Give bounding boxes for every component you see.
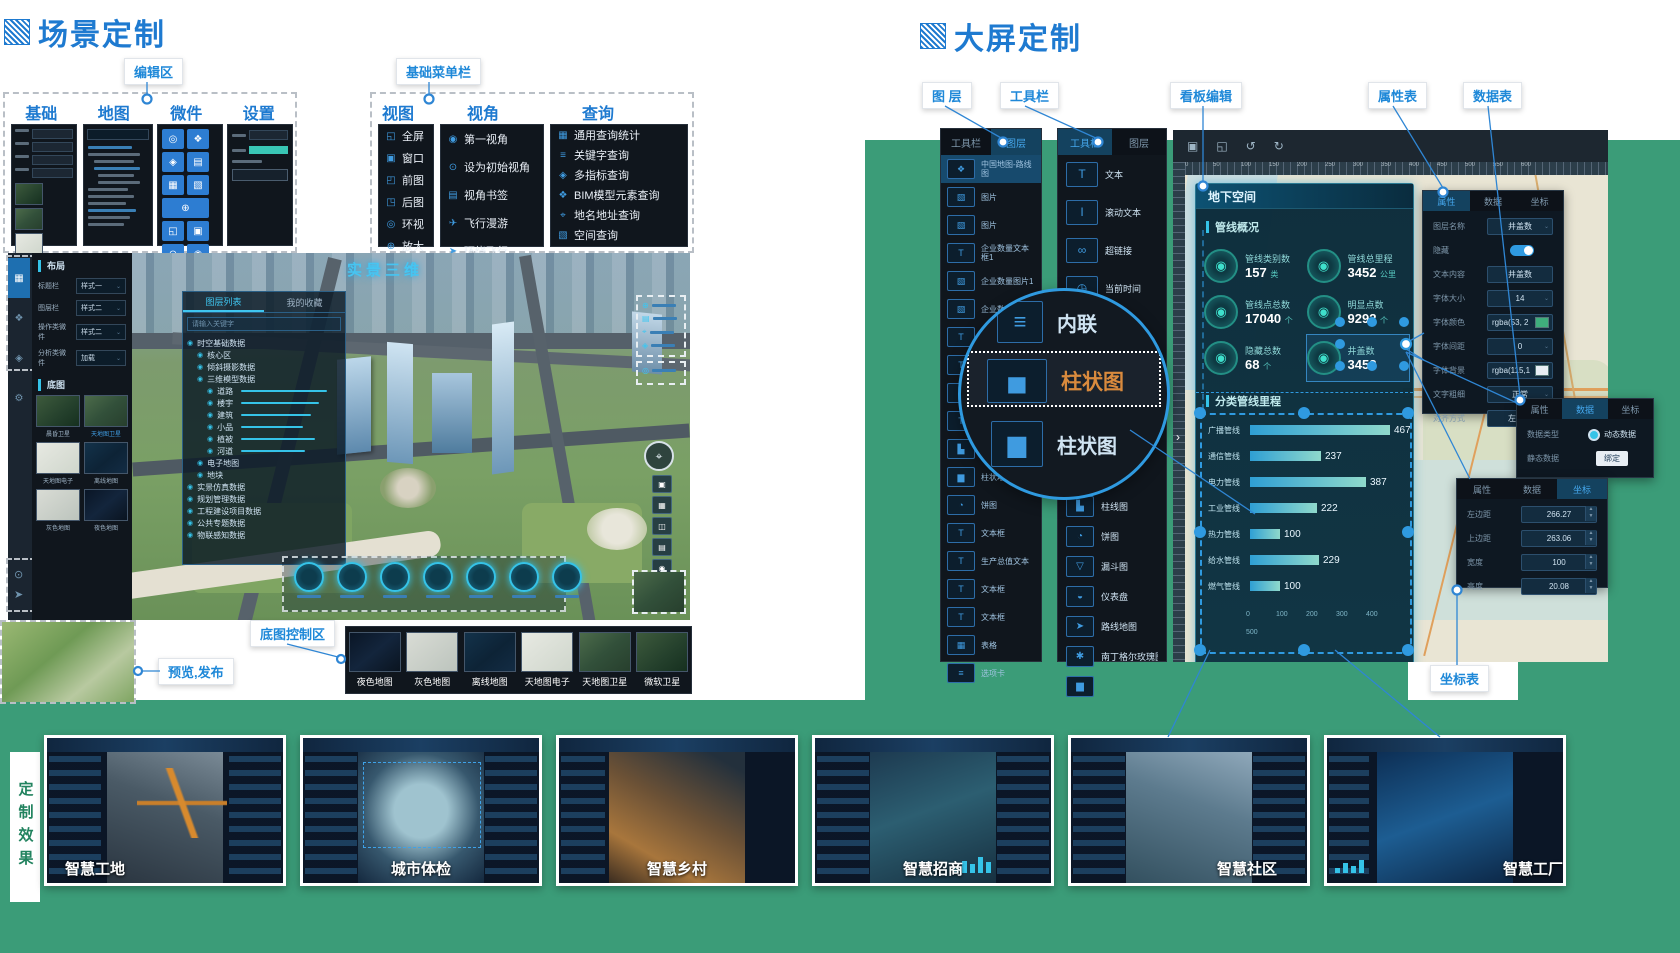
- gallery-item-investment[interactable]: 智慧招商: [812, 735, 1054, 886]
- basemap-option-image: [521, 632, 573, 672]
- widget-tile[interactable]: ◎: [162, 129, 184, 149]
- chart-category-label: 燃气管线: [1208, 581, 1250, 592]
- basemap-option-image: [349, 632, 401, 672]
- image-icon: ▧: [947, 215, 975, 235]
- eye-icon[interactable]: ◉: [197, 363, 203, 371]
- tool-item-label: 仪表盘: [1101, 590, 1128, 603]
- ruler-number: 500: [1465, 162, 1493, 168]
- basemap-option[interactable]: 灰色地图: [404, 632, 460, 688]
- ruler-number: 450: [1437, 162, 1465, 168]
- section-bullet-icon: [4, 19, 30, 45]
- coord-row-value[interactable]: 100 ▲▼: [1521, 554, 1597, 571]
- layer-item[interactable]: T 文本框: [941, 575, 1041, 603]
- tool-item-label: 路线地图: [1101, 620, 1137, 633]
- screen-section-title: 大屏定制: [954, 14, 1082, 58]
- gallery-item-village[interactable]: 智慧乡村: [556, 735, 798, 886]
- bar-chart-icon: ▅: [987, 359, 1047, 403]
- basemap-option-label: 天地图卫星: [582, 675, 627, 688]
- split-icon[interactable]: ◫: [652, 517, 672, 535]
- coords-tab-data[interactable]: 数据: [1507, 479, 1557, 499]
- opacity-slider[interactable]: [241, 414, 311, 416]
- eye-icon[interactable]: ◉: [187, 495, 193, 503]
- basemap-option[interactable]: 天地图电子: [519, 632, 575, 688]
- tool-item[interactable]: ◔ 饼图: [1058, 521, 1166, 551]
- watermark-text: 实景三维: [347, 259, 423, 280]
- widget-swipe[interactable]: [466, 562, 496, 598]
- stat-item[interactable]: ◉ 明显点数 9292 个: [1307, 289, 1410, 335]
- scene-config-panel: 布局 标题栏 样式一⌄ 图层栏 样式二⌄ 操作类微件 样式二⌄: [32, 253, 133, 620]
- gallery-item-title: 智慧工地: [47, 858, 286, 879]
- tree-row[interactable]: ◉ 建筑: [187, 409, 341, 421]
- rose-icon: ✱: [1066, 646, 1094, 667]
- chart-category-label: 工业管线: [1208, 503, 1250, 514]
- tree-row[interactable]: ◉ 植被: [187, 433, 341, 445]
- eye-icon[interactable]: ◉: [197, 459, 203, 467]
- basemap-option-image: [579, 632, 631, 672]
- tab-settings[interactable]: 设置: [243, 100, 275, 124]
- basemap-thumb-cell[interactable]: 夜色地图: [84, 489, 128, 532]
- widget-tile[interactable]: ⊕: [162, 198, 209, 218]
- zoom-in-icon: ⊕: [385, 241, 397, 252]
- eye-icon[interactable]: ◉: [187, 507, 193, 515]
- orbit-icon: ◎: [385, 219, 397, 230]
- eye-icon[interactable]: ◉: [207, 387, 213, 395]
- data-panel: 属性 数据 坐标 数据类型 动态数据 静态数据 绑定: [1516, 398, 1654, 478]
- eye-icon[interactable]: ◉: [187, 339, 193, 347]
- coords-tab-coords[interactable]: 坐标: [1557, 479, 1607, 499]
- stat-item[interactable]: ◉ 管线点总数 17040 个: [1204, 289, 1307, 335]
- coord-row-label: 左边距: [1467, 509, 1515, 520]
- tree-row[interactable]: ◉ 时空基础数据: [187, 337, 341, 349]
- redo-icon[interactable]: ↻: [1274, 139, 1284, 153]
- tree-tab-favorites[interactable]: 我的收藏: [264, 292, 345, 312]
- tree-tab-layers[interactable]: 图层列表: [183, 292, 264, 312]
- layout-row-select[interactable]: 样式二⌄: [76, 324, 126, 340]
- scroll-text-icon: I: [1066, 200, 1098, 225]
- tree-row[interactable]: ◉ 公共专题数据: [187, 517, 341, 529]
- route-map-icon: ➤: [1066, 616, 1094, 637]
- mark-icon[interactable]: ◈: [642, 341, 648, 350]
- scene-3d-view[interactable]: 实景三维 图层列表 我的收藏 请输入关键字 ◉ 时空基础数据 ◉: [132, 253, 690, 620]
- menu-item[interactable]: ⊙设为初始视角: [441, 153, 543, 181]
- widget-viewshed[interactable]: [380, 562, 410, 598]
- locate-icon[interactable]: ⊕: [642, 301, 649, 310]
- menu-group-title-camera: 视角: [467, 106, 499, 123]
- gear-icon: ⚙: [15, 393, 24, 404]
- menu-item[interactable]: ▤视角书签: [441, 181, 543, 209]
- widget-tile[interactable]: ▧: [187, 175, 209, 195]
- ruler-number: 200: [1297, 162, 1325, 168]
- stat-item[interactable]: ◉ 管线总里程 3452 公里: [1307, 243, 1410, 289]
- coord-row-label: 上边距: [1467, 533, 1515, 544]
- tool-item[interactable]: ◒ 仪表盘: [1058, 581, 1166, 611]
- image-icon: ▧: [947, 271, 975, 291]
- menu-item[interactable]: ≡关键字查询: [551, 145, 687, 165]
- basemap-thumb-cell[interactable]: 离线地图: [84, 442, 128, 485]
- x-tick-label: 500: [1246, 629, 1276, 636]
- chart-category-label: 给水管线: [1208, 555, 1250, 566]
- x-tick-label: 0: [1246, 611, 1276, 618]
- multi-indicator-icon: ◈: [557, 170, 569, 181]
- dashboard[interactable]: 地下空间 管线概况 ◉ 管线类别数 157 类 ◉ 管线点总数 17040 个: [1195, 183, 1414, 662]
- minimap-box[interactable]: [632, 570, 686, 614]
- stat-icon: ◉: [1204, 249, 1238, 283]
- panel-tab-layers[interactable]: 图层: [991, 129, 1041, 155]
- tree-row[interactable]: ◉ 实景仿真数据: [187, 481, 341, 493]
- opacity-slider[interactable]: [241, 390, 327, 392]
- tree-row-label: 核心区: [207, 350, 231, 361]
- prop-label: 对齐方式: [1433, 413, 1481, 424]
- widget-sight[interactable]: [337, 562, 367, 598]
- tree-row[interactable]: ◉ 三维模型数据: [187, 373, 341, 385]
- tree-row-label: 楼宇: [217, 398, 233, 409]
- widget-tile[interactable]: ▦: [162, 175, 184, 195]
- save-icon[interactable]: ▣: [1187, 139, 1198, 153]
- tree-row[interactable]: ◉ 电子地图: [187, 457, 341, 469]
- layer-item-label: 图片: [981, 193, 997, 202]
- layer-item[interactable]: ◔ 饼图: [941, 491, 1041, 519]
- layout-row-select[interactable]: 样式二⌄: [76, 300, 126, 316]
- basemap-control-tag: 底图控制区: [250, 620, 335, 647]
- panel-tab-layers[interactable]: 图层: [1112, 129, 1166, 155]
- ruler-number: 550: [1493, 162, 1521, 168]
- coords-table-tag: 坐标表: [1430, 665, 1489, 692]
- board-edit-tag: 看板编辑: [1170, 82, 1242, 109]
- basemap-thumb-image: [84, 395, 128, 427]
- color-swatch: [1535, 317, 1549, 328]
- tree-row[interactable]: ◉ 核心区: [187, 349, 341, 361]
- data-row: 数据类型 动态数据: [1527, 426, 1643, 443]
- chevron-down-icon: ⌄: [1544, 343, 1549, 350]
- prop-label: 字体间距: [1433, 341, 1481, 352]
- undo-icon[interactable]: ↺: [1246, 139, 1256, 153]
- opacity-slider[interactable]: [241, 402, 319, 404]
- pie-icon: ◔: [1066, 526, 1094, 547]
- tool-item[interactable]: ∞ 超链接: [1058, 231, 1166, 269]
- data-tab-attr[interactable]: 属性: [1517, 399, 1562, 419]
- stepper-arrows[interactable]: ▲▼: [1585, 578, 1596, 593]
- tree-row-label: 工程建设项目数据: [197, 506, 261, 517]
- mini-panel-settings: [227, 124, 293, 246]
- eye-icon[interactable]: ◉: [207, 411, 213, 419]
- chart-value-label: 387: [1370, 477, 1387, 488]
- x-tick-label: 400: [1366, 611, 1396, 618]
- opacity-slider[interactable]: [241, 438, 315, 440]
- camera-icon[interactable]: ▣: [652, 475, 672, 493]
- basemap-thumb-cell[interactable]: 灰色地图: [36, 489, 80, 532]
- basemap-option-label: 微软卫星: [644, 675, 680, 688]
- prop-value[interactable]: 0 ⌄: [1487, 338, 1553, 355]
- chart-row: 通信管线 237: [1208, 443, 1413, 469]
- tree-row-label: 倾斜摄影数据: [207, 362, 255, 373]
- basemap-option-image: [406, 632, 458, 672]
- tab-widgets[interactable]: 微件: [170, 100, 202, 124]
- menu-item-label: 空间查询: [574, 227, 618, 243]
- layout-row-select[interactable]: 样式一⌄: [76, 278, 126, 294]
- tool-item[interactable]: T 文本: [1058, 155, 1166, 193]
- layer-item-label: 表格: [981, 641, 997, 650]
- chevron-down-icon: ⌄: [1544, 295, 1549, 302]
- data-row-label: 静态数据: [1527, 453, 1575, 464]
- layers-icon[interactable]: ▦: [652, 496, 672, 514]
- layout-section-header: 布局: [38, 259, 132, 272]
- prop-row: 字体背景 rgba(115,1: [1433, 362, 1553, 379]
- magnified-tool-selected[interactable]: ▅ 柱状图: [967, 351, 1161, 407]
- tool-item[interactable]: ▽ 漏斗图: [1058, 551, 1166, 581]
- tree-row[interactable]: ◉ 道路: [187, 385, 341, 397]
- chart-row: 给水管线 229: [1208, 547, 1413, 573]
- tab-basic[interactable]: 基础: [25, 100, 57, 124]
- tab-map[interactable]: 地图: [98, 100, 130, 124]
- layer-item[interactable]: T 文本框: [941, 519, 1041, 547]
- opacity-slider[interactable]: [241, 450, 305, 452]
- next-view-icon: ◳: [385, 197, 397, 208]
- menu-item[interactable]: ⌖地名地址查询: [551, 205, 687, 225]
- tree-row[interactable]: ◉ 河道: [187, 445, 341, 457]
- fullscreen-icon: ◱: [385, 131, 397, 142]
- gauge-icon: ◒: [1066, 586, 1094, 607]
- layer-item[interactable]: ▦ 表格: [941, 631, 1041, 659]
- gallery-item-title: 智慧乡村: [559, 858, 795, 879]
- basemap-option[interactable]: 微软卫星: [634, 632, 690, 688]
- chevron-down-icon: ⌄: [1544, 391, 1549, 398]
- coord-row-value[interactable]: 20.08 ▲▼: [1521, 578, 1597, 595]
- data-tab-coords[interactable]: 坐标: [1608, 399, 1653, 419]
- stat-icon: ◉: [1307, 249, 1341, 283]
- eye-icon[interactable]: ◉: [207, 399, 213, 407]
- data-row-value[interactable]: 动态数据: [1581, 427, 1643, 442]
- widget-tile[interactable]: ▣: [187, 221, 209, 241]
- menu-item[interactable]: ◈多指标查询: [551, 165, 687, 185]
- menu-item[interactable]: ❖BIM模型元素查询: [551, 185, 687, 205]
- prop-value[interactable]: [1487, 243, 1553, 258]
- tree-row-label: 规划管理数据: [197, 494, 245, 505]
- props-tab-data[interactable]: 数据: [1470, 191, 1517, 211]
- tree-row[interactable]: ◉ 物联感知数据: [187, 529, 341, 541]
- data-row-value[interactable]: 绑定: [1581, 451, 1643, 466]
- widget-roam[interactable]: [294, 562, 324, 598]
- layer-item[interactable]: ≡ 选项卡: [941, 659, 1041, 687]
- chart-x-axis: 0100200300400500: [1246, 603, 1413, 639]
- widget-tile[interactable]: ❖: [187, 129, 209, 149]
- layer-item[interactable]: T 生产总值文本: [941, 547, 1041, 575]
- widget-tile[interactable]: ◱: [162, 221, 184, 241]
- prop-value[interactable]: 井盖数 ⌄: [1487, 218, 1553, 235]
- menu-item-label: 多指标查询: [574, 167, 629, 183]
- tool-item[interactable]: ✱ 南丁格尔玫瑰图: [1058, 641, 1166, 671]
- stat-item[interactable]: ◉ 井盖数 3452: [1307, 335, 1410, 381]
- basemap-thumb-label: 晨昏卫星: [36, 429, 80, 438]
- props-panel: 属性 数据 坐标 图层名称 井盖数 ⌄ 隐藏 文本内容: [1422, 190, 1564, 414]
- layer-item[interactable]: T 企业数量文本框1: [941, 239, 1041, 267]
- chart-category-label: 电力管线: [1208, 477, 1250, 488]
- stat-item[interactable]: ◉ 管线类别数 157 类: [1204, 243, 1307, 289]
- scene-editor-window: ▦ ❖ ◈ ⚙ ⊙ ➤ 布局 标题栏 样式一⌄ 图层栏 样式二⌄ 操作: [8, 253, 690, 620]
- basemap-option[interactable]: 离线地图: [462, 632, 518, 688]
- prop-label: 文字粗细: [1433, 389, 1481, 400]
- tree-row[interactable]: ◉ 楼宇: [187, 397, 341, 409]
- basemap-thumb-cell[interactable]: 晨昏卫星: [36, 395, 80, 438]
- prop-row: 图层名称 井盖数 ⌄: [1433, 218, 1553, 235]
- stepper-arrows[interactable]: ▲▼: [1585, 506, 1596, 521]
- tool-item[interactable]: ▆: [1058, 671, 1166, 701]
- coord-row-label: 高度: [1467, 581, 1515, 592]
- menu-item[interactable]: ◳后图: [379, 191, 433, 213]
- gallery-item-community[interactable]: 智慧社区: [1068, 735, 1310, 886]
- stepper-arrows[interactable]: ▲▼: [1585, 530, 1596, 545]
- magnifier-circle: ≡ 内联 ▅ 柱状图 ▆ 柱状图: [958, 288, 1170, 500]
- coord-row-value[interactable]: 266.27 ▲▼: [1521, 506, 1597, 523]
- prop-value[interactable]: 14 ⌄: [1487, 290, 1553, 307]
- basemap-thumb-image: [36, 442, 80, 474]
- chart-value-label: 229: [1323, 555, 1340, 566]
- prop-row: 文本内容 井盖数: [1433, 266, 1553, 283]
- tool-item[interactable]: I 滚动文本: [1058, 193, 1166, 231]
- basemap-thumb[interactable]: [15, 208, 43, 230]
- chevron-down-icon: ⌄: [116, 305, 121, 312]
- props-tab-coords[interactable]: 坐标: [1516, 191, 1563, 211]
- prev-view-icon: ◰: [385, 175, 397, 186]
- bind-button[interactable]: 绑定: [1596, 451, 1628, 466]
- tree-row[interactable]: ◉ 规划管理数据: [187, 493, 341, 505]
- data-tab-data[interactable]: 数据: [1562, 399, 1607, 419]
- eye-icon[interactable]: ◉: [197, 471, 203, 479]
- collapse-chevron-icon[interactable]: ›: [1176, 430, 1180, 444]
- layer-item[interactable]: ▧ 企业数量图片1: [941, 267, 1041, 295]
- eye-icon[interactable]: ◉: [197, 351, 203, 359]
- frame-select-icon[interactable]: ◱: [1216, 139, 1227, 153]
- tool-item-label: 南丁格尔玫瑰图: [1101, 650, 1158, 663]
- coords-tab-attr[interactable]: 属性: [1457, 479, 1507, 499]
- menu-item-label: 第一视角: [464, 131, 508, 147]
- chart-row: 工业管线 222: [1208, 495, 1413, 521]
- nav-widget-box: ⊕ ▤ ⌖ ◈: [636, 295, 686, 357]
- tree-row[interactable]: ◉ 倾斜摄影数据: [187, 361, 341, 373]
- magnified-tool-label: 内联: [1057, 308, 1097, 337]
- layout-row-select[interactable]: 加载⌄: [76, 350, 126, 366]
- eye-icon[interactable]: ◉: [207, 423, 213, 431]
- share-icon[interactable]: ➤: [14, 588, 23, 601]
- measure-icon[interactable]: ⌖: [642, 327, 647, 337]
- eye-icon[interactable]: ◉: [187, 483, 193, 491]
- basemap-thumb-image: [36, 489, 80, 521]
- sidebar-tab-settings[interactable]: ⚙: [8, 378, 30, 418]
- menu-item[interactable]: ◱全屏: [379, 125, 433, 147]
- basemap-thumb-cell[interactable]: 天地图卫星: [84, 395, 128, 438]
- mini-panel-map: [83, 124, 153, 246]
- eye-icon[interactable]: ◉: [187, 531, 193, 539]
- prop-value[interactable]: 井盖数: [1487, 266, 1553, 283]
- eye-icon[interactable]: ◉: [207, 435, 213, 443]
- eye-icon[interactable]: ◉: [197, 375, 203, 383]
- reset-view-icon[interactable]: ◎: [642, 366, 649, 375]
- widget-measure[interactable]: [509, 562, 539, 598]
- ruler-number: 50: [1213, 162, 1241, 168]
- basemap-option[interactable]: 夜色地图: [347, 632, 403, 688]
- widget-tile[interactable]: ◈: [162, 152, 184, 172]
- props-tab-attr[interactable]: 属性: [1423, 191, 1470, 211]
- chart-bar: [1250, 529, 1280, 539]
- menu-item-label: 通用查询统计: [574, 127, 640, 143]
- widget-mark[interactable]: [552, 562, 582, 598]
- stat-item[interactable]: ◉ 隐藏总数 68 个: [1204, 335, 1307, 381]
- menu-item[interactable]: ▣窗口: [379, 147, 433, 169]
- initial-view-icon: ⊙: [447, 162, 459, 173]
- x-tick-label: 100: [1276, 611, 1306, 618]
- basemap-option[interactable]: 天地图卫星: [577, 632, 633, 688]
- chart-bar: [1250, 581, 1280, 591]
- gallery-item-citycheck[interactable]: 城市体检: [300, 735, 542, 886]
- opacity-slider[interactable]: [241, 426, 303, 428]
- layer-item[interactable]: T 文本框: [941, 603, 1041, 631]
- tree-row-label: 建筑: [217, 410, 233, 421]
- basemap-option-image: [636, 632, 688, 672]
- basemap-thumb-label: 灰色地图: [36, 523, 80, 532]
- bars-icon: ▆: [991, 421, 1043, 467]
- gallery-item-construction[interactable]: 智慧工地: [44, 735, 286, 886]
- panel-tab-toolbar[interactable]: 工具栏: [941, 129, 991, 155]
- layer-item-label: 饼图: [981, 501, 997, 510]
- bim-query-icon: ❖: [557, 190, 569, 201]
- tree-row[interactable]: ◉ 地块: [187, 469, 341, 481]
- layer-item[interactable]: ❖ 中国地图-路线图: [941, 155, 1041, 183]
- prop-value[interactable]: rgba(115,1: [1487, 362, 1553, 379]
- tool-item-label: 当前时间: [1105, 282, 1141, 295]
- data-rows: 数据类型 动态数据 静态数据 绑定: [1517, 426, 1653, 467]
- widget-tile[interactable]: ▤: [187, 152, 209, 172]
- menu-item[interactable]: ◰前图: [379, 169, 433, 191]
- basemap-thumb-cell[interactable]: 天地图电子: [36, 442, 80, 485]
- prop-value[interactable]: rgba(53, 2: [1487, 314, 1553, 331]
- tool-item[interactable]: ➤ 路线地图: [1058, 611, 1166, 641]
- basemap-thumb[interactable]: [15, 183, 43, 205]
- view-menu-panel: ◱全屏▣窗口◰前图◳后图◎环视⊕放大⋯: [378, 124, 434, 247]
- coord-row-value[interactable]: 263.06 ▲▼: [1521, 530, 1597, 547]
- ruler-icon[interactable]: ▤: [652, 538, 672, 556]
- map-icon: ❖: [947, 159, 975, 179]
- basemap-thumb[interactable]: [15, 233, 43, 255]
- menu-item[interactable]: ◉第一视角: [441, 125, 543, 153]
- gallery-item-factory[interactable]: 智慧工厂: [1324, 735, 1566, 886]
- menu-item[interactable]: ◎环视: [379, 213, 433, 235]
- preview-thumbnail[interactable]: [0, 620, 136, 704]
- prop-row: 字体大小 14 ⌄: [1433, 290, 1553, 307]
- legend-icon[interactable]: ▤: [642, 314, 650, 323]
- menu-item[interactable]: ▦通用查询统计: [551, 125, 687, 145]
- stats-query-icon: ▦: [557, 130, 569, 141]
- chart-row: 电力管线 387: [1208, 469, 1413, 495]
- layer-item[interactable]: ▧ 图片: [941, 211, 1041, 239]
- eye-icon[interactable]: ◉: [207, 447, 213, 455]
- compass-icon[interactable]: ⌖: [644, 441, 674, 471]
- layer-item[interactable]: ▧ 图片: [941, 183, 1041, 211]
- basemap-thumb-label: 离线地图: [84, 476, 128, 485]
- widget-sunlight[interactable]: [423, 562, 453, 598]
- tree-row[interactable]: ◉ 工程建设项目数据: [187, 505, 341, 517]
- menu-item[interactable]: ✈飞行漫游: [441, 209, 543, 237]
- stepper-arrows[interactable]: ▲▼: [1585, 554, 1596, 569]
- editor-panels-group: 基础 地图 微件 设置: [3, 92, 297, 253]
- tree-search-input[interactable]: 请输入关键字: [187, 317, 341, 331]
- panel-tab-toolbar[interactable]: 工具栏: [1058, 129, 1112, 155]
- help-icon[interactable]: ⊙: [14, 568, 23, 581]
- tree-row[interactable]: ◉ 小品: [187, 421, 341, 433]
- menu-item[interactable]: ▧空间查询: [551, 225, 687, 245]
- eye-icon[interactable]: ◉: [187, 519, 193, 527]
- chart-value-label: 222: [1321, 503, 1338, 514]
- chart-bar: [1250, 425, 1390, 435]
- chart-value-label: 100: [1284, 581, 1301, 592]
